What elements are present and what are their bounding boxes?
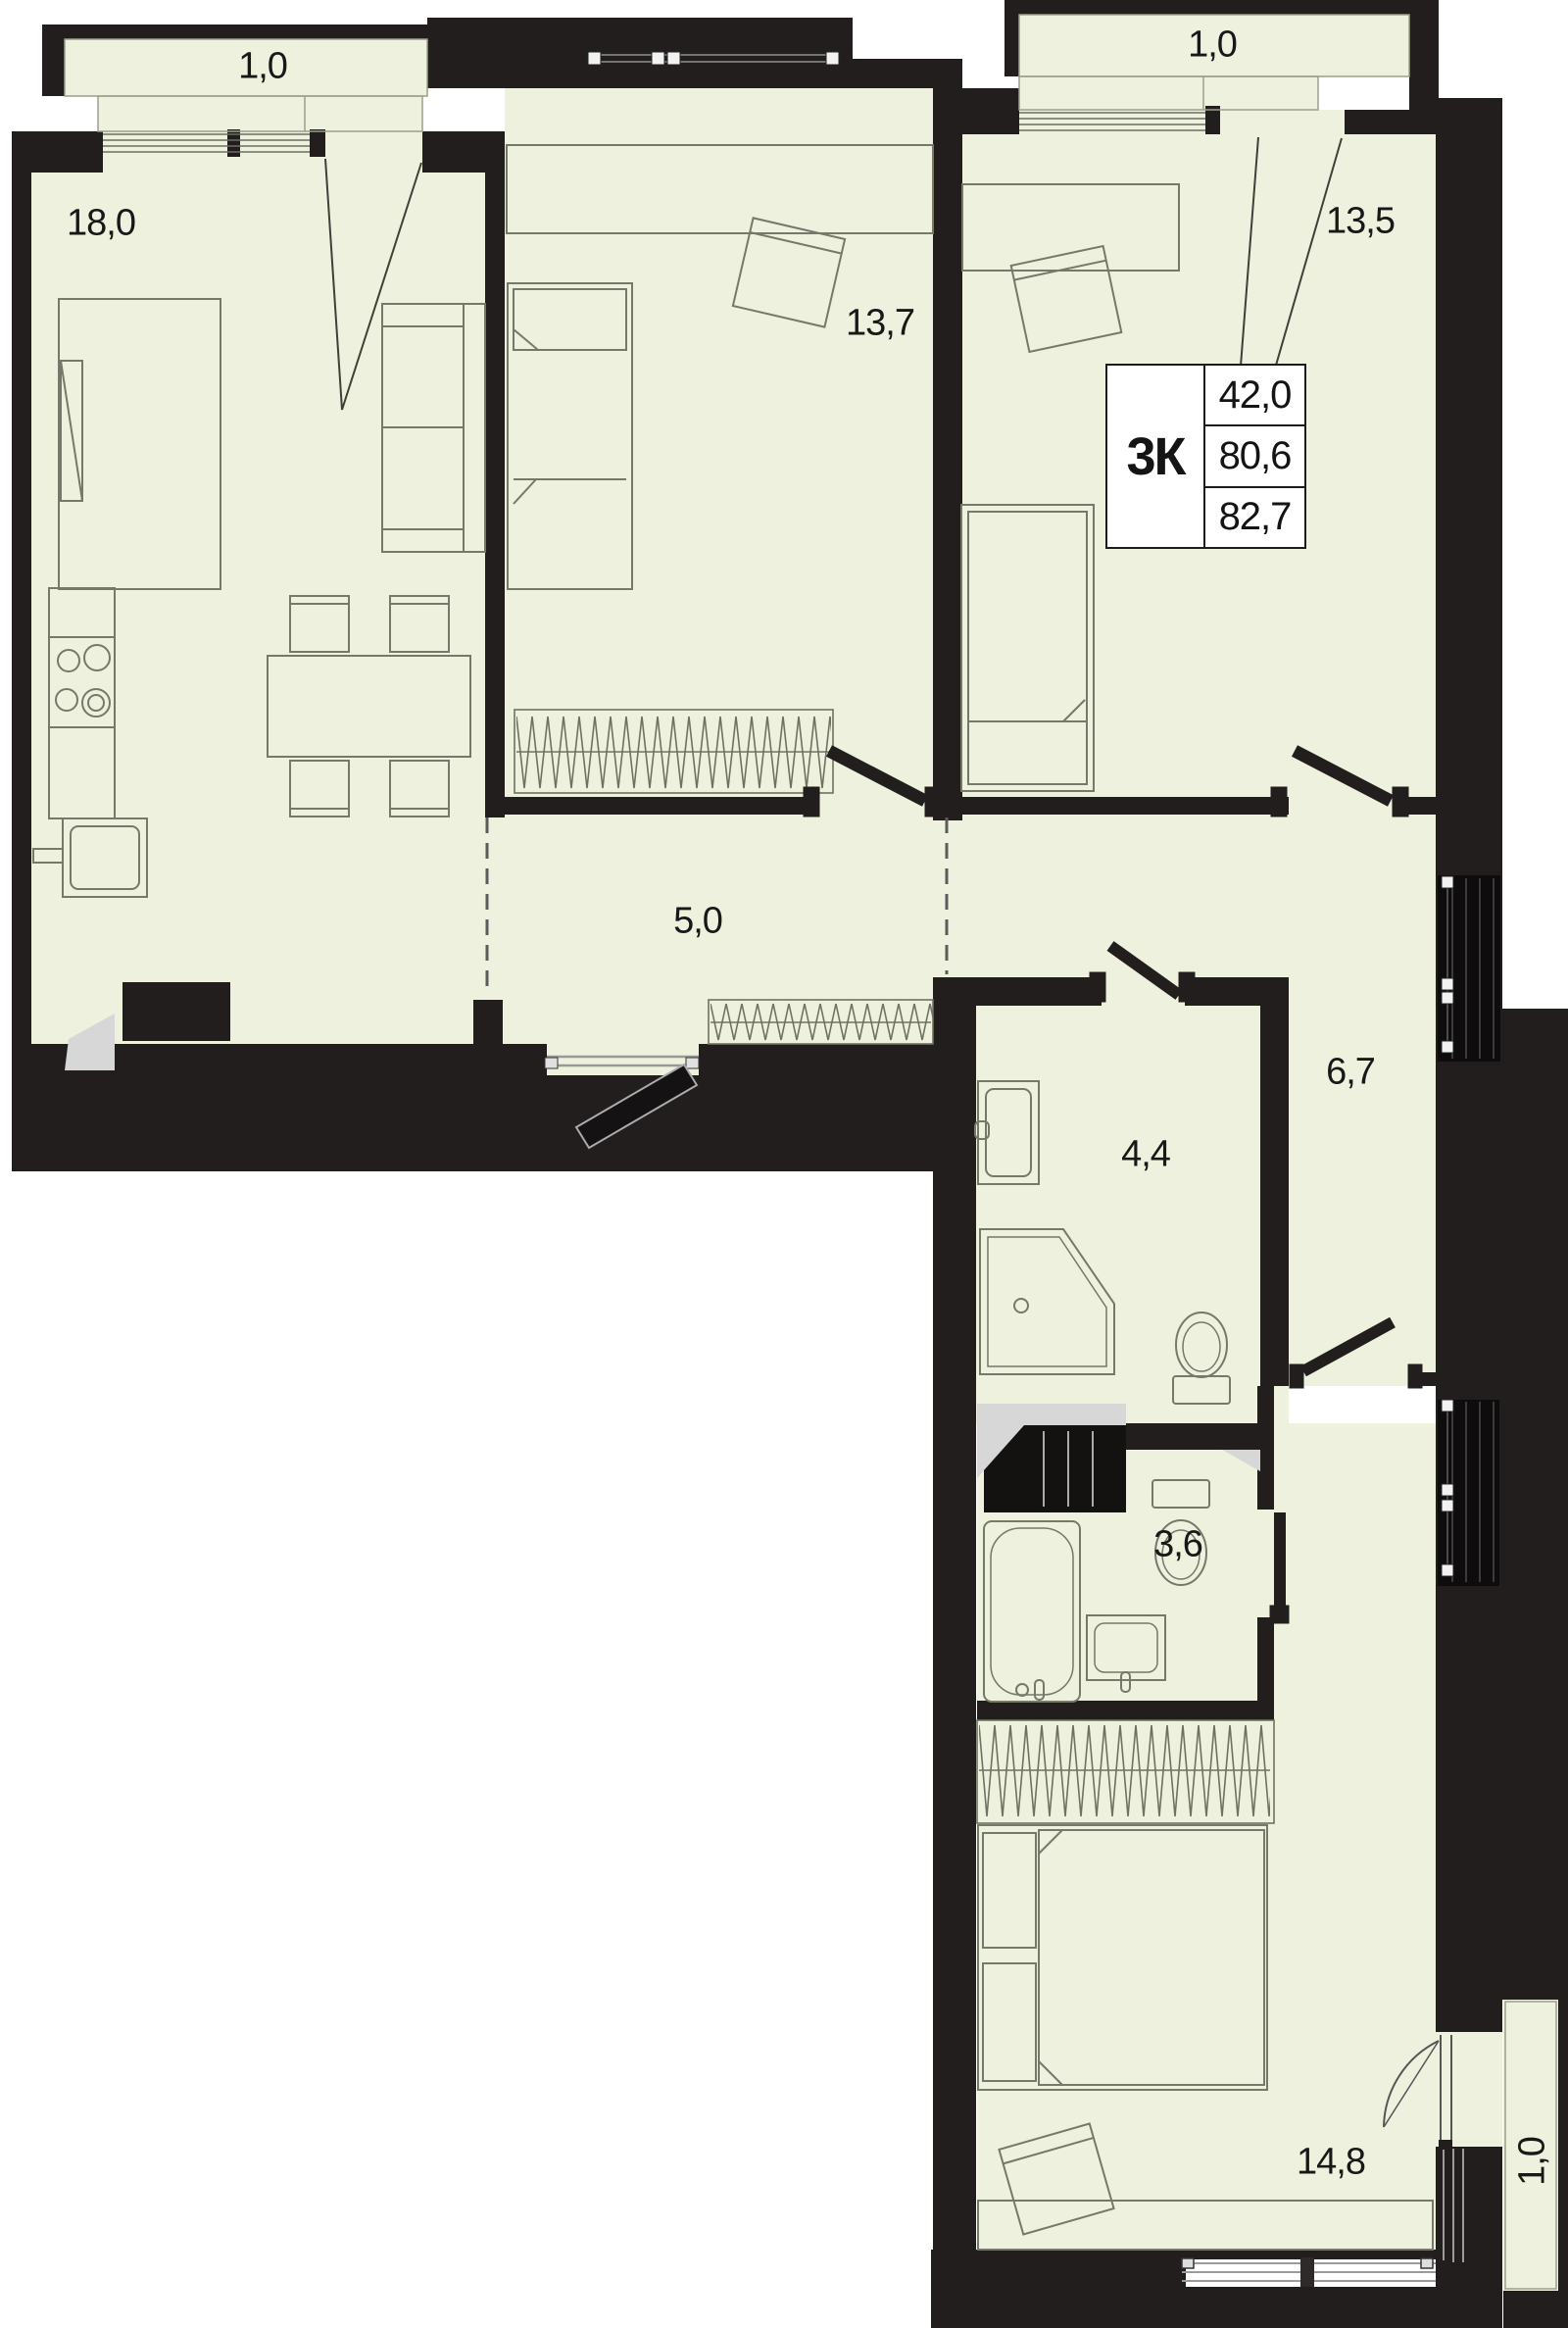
floor-plan-drawing: [0, 0, 1568, 2328]
apartment-type: 3К: [1107, 366, 1205, 547]
shower-room-label: 4,4: [1121, 1134, 1170, 1176]
kitchen-duct: [122, 982, 230, 1041]
corridor-label: 6,7: [1326, 1052, 1375, 1094]
floor-plan: 1,0 18,0 13,7 1,0 13,5 5,0 6,7 4,4 3,6 1…: [0, 0, 1568, 2328]
balcony-bottom-right-label: 1,0: [1512, 2137, 1554, 2186]
total-area-value: 82,7: [1205, 486, 1304, 547]
apartment-info-box: 3К 42,0 80,6 82,7: [1105, 364, 1306, 549]
apartment-area-value: 80,6: [1205, 424, 1304, 485]
bedroom-bottom-label: 14,8: [1297, 2142, 1365, 2184]
hallway-label: 5,0: [673, 901, 722, 943]
bedroom-middle-label: 13,7: [846, 303, 914, 345]
balcony-top-left-label: 1,0: [238, 46, 287, 88]
balcony-top-right-label: 1,0: [1188, 25, 1237, 67]
kitchen-living-label: 18,0: [67, 203, 135, 245]
living-area-value: 42,0: [1205, 366, 1304, 424]
bedroom-right-label: 13,5: [1326, 201, 1395, 243]
bathroom-label: 3,6: [1153, 1524, 1202, 1566]
